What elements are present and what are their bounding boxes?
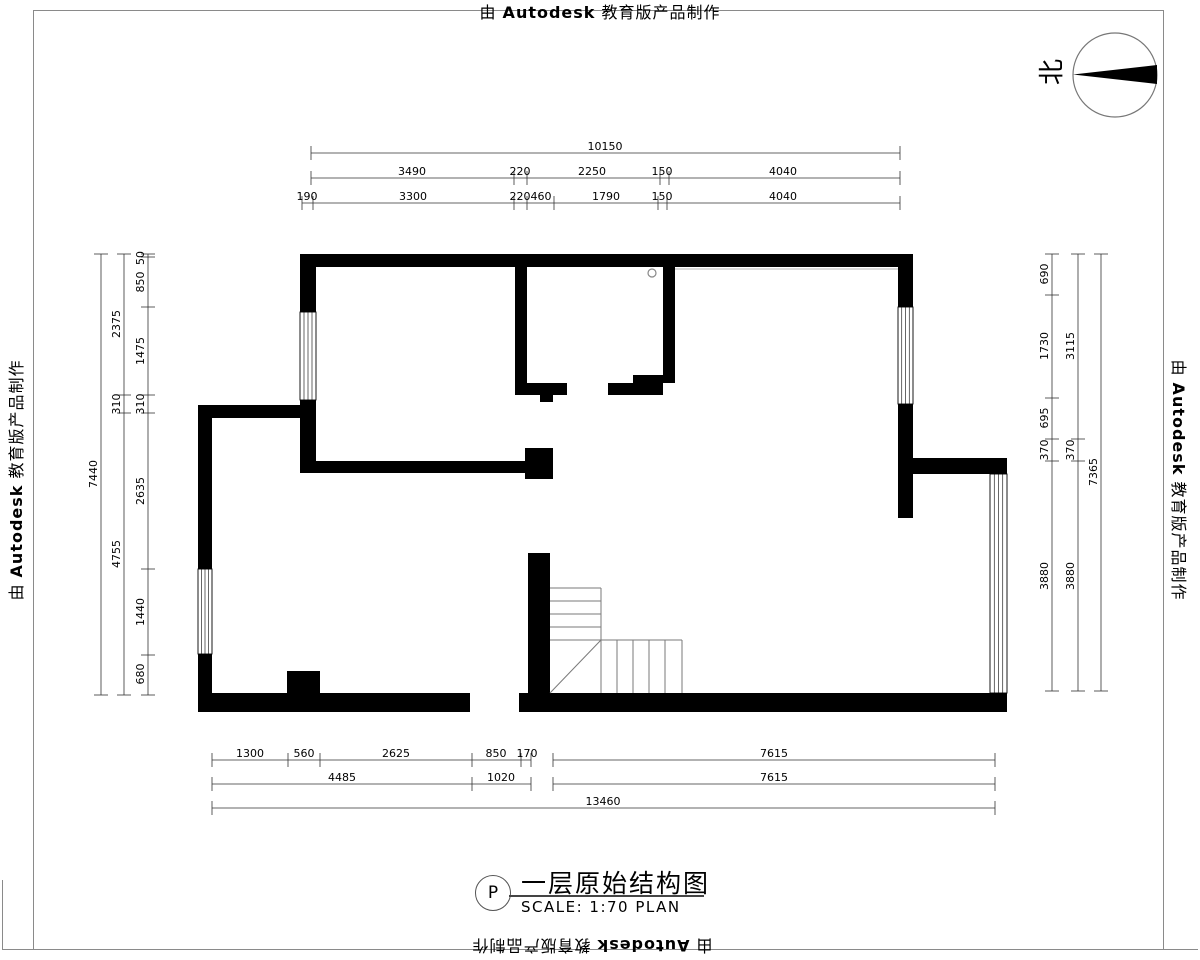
title-underline: [509, 895, 704, 897]
stair-line: [550, 640, 601, 693]
dimension-label: 4040: [769, 165, 797, 178]
dimension-label: 4040: [769, 190, 797, 203]
dimension-label: 310: [134, 394, 147, 415]
dimension-label: 220: [510, 190, 531, 203]
wall: [300, 254, 913, 267]
wall: [198, 418, 212, 569]
dimension-label: 7440: [87, 460, 100, 488]
wall: [515, 254, 527, 395]
dimension-label: 10150: [588, 140, 623, 153]
dimension-label: 680: [134, 664, 147, 685]
dimension-label: 7365: [1087, 458, 1100, 486]
dimension-label: 310: [110, 394, 123, 415]
dimension-label: 560: [294, 747, 315, 760]
detail-tag: P: [475, 875, 511, 911]
wall: [525, 448, 553, 479]
dimension-label: 1440: [134, 598, 147, 626]
wall: [300, 254, 316, 312]
dimension-label: 1730: [1038, 332, 1051, 360]
wall: [198, 693, 470, 712]
wall: [528, 553, 550, 693]
wall: [300, 461, 525, 473]
dimension-label: 1020: [487, 771, 515, 784]
dimension-label: 1300: [236, 747, 264, 760]
fixture-circle: [648, 269, 656, 277]
dimension-label: 850: [486, 747, 507, 760]
dimension-label: 13460: [586, 795, 621, 808]
dimension-label: 150: [652, 165, 673, 178]
dimension-label: 7615: [760, 771, 788, 784]
dimension-label: 3880: [1038, 562, 1051, 590]
dimension-label: 150: [652, 190, 673, 203]
dimension-label: 170: [517, 747, 538, 760]
wall: [540, 395, 553, 402]
wall: [198, 405, 316, 418]
dimension-label: 370: [1038, 440, 1051, 461]
dimension-label: 190: [297, 190, 318, 203]
wall: [608, 383, 663, 395]
dimension-label: 690: [1038, 264, 1051, 285]
detail-tag-letter: P: [488, 883, 498, 903]
floor-plan: 1015034902202250150404019033002204601790…: [0, 0, 1200, 960]
wall: [287, 671, 320, 693]
dimension-label: 4485: [328, 771, 356, 784]
dimension-label: 3115: [1064, 332, 1077, 360]
dimension-label: 3300: [399, 190, 427, 203]
dimension-label: 1475: [134, 337, 147, 365]
dimension-label: 3880: [1064, 562, 1077, 590]
wall: [898, 254, 913, 307]
dimension-label: 1790: [592, 190, 620, 203]
dimension-label: 2375: [110, 310, 123, 338]
wall: [663, 254, 675, 383]
dimension-label: 220: [510, 165, 531, 178]
dimension-label: 2625: [382, 747, 410, 760]
dimension-label: 4755: [110, 540, 123, 568]
dimension-label: 370: [1064, 440, 1077, 461]
dimension-label: 7615: [760, 747, 788, 760]
wall: [527, 383, 567, 395]
dimension-label: 2250: [578, 165, 606, 178]
dimension-label: 850: [134, 272, 147, 293]
dimension-label: 460: [531, 190, 552, 203]
dimension-label: 695: [1038, 408, 1051, 429]
wall: [898, 458, 1007, 474]
dimension-label: 3490: [398, 165, 426, 178]
scale-text: SCALE: 1:70 PLAN: [521, 898, 681, 916]
dimension-label: 2635: [134, 477, 147, 505]
wall: [519, 693, 1007, 712]
dimension-label: 50: [134, 251, 147, 265]
